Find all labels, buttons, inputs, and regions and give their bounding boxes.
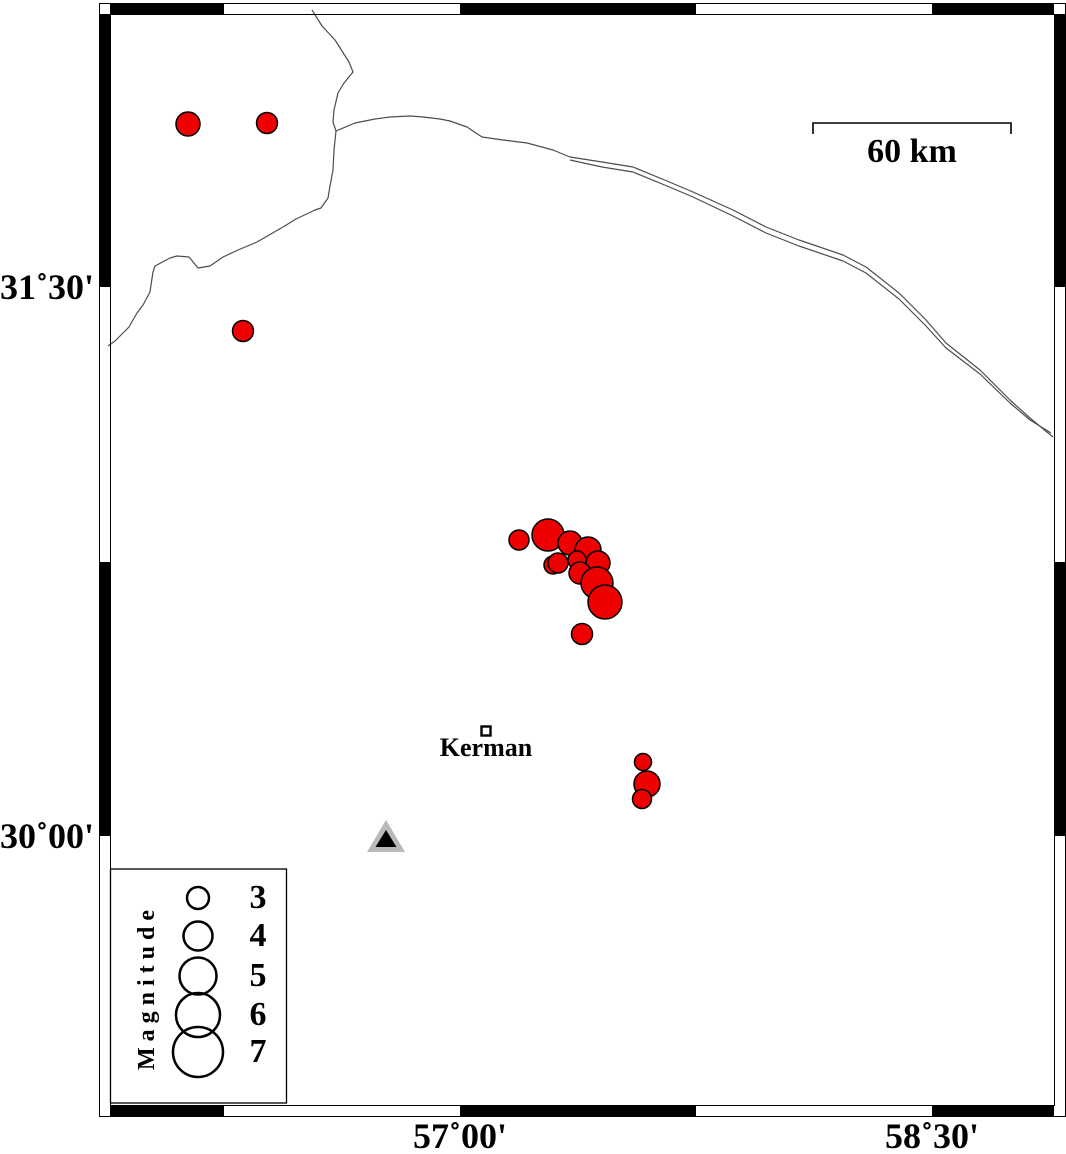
frame-tick-bottom-2 bbox=[932, 1106, 1054, 1117]
map-canvas: 31˚30' 30˚00' 57˚00' 58˚30' 60 km Kerman… bbox=[0, 0, 1066, 1154]
frame-tick-top-0 bbox=[110, 4, 224, 15]
frame-tick-top-2 bbox=[932, 4, 1054, 15]
frame-tick-left-1 bbox=[100, 562, 111, 836]
earthquake-marker-14 bbox=[572, 624, 593, 645]
frame-tick-left-0 bbox=[100, 14, 111, 287]
border-line-0 bbox=[108, 10, 353, 346]
frame-tick-bottom-1 bbox=[460, 1106, 696, 1117]
city-label-kerman: Kerman bbox=[396, 734, 576, 762]
earthquake-marker-17 bbox=[633, 790, 652, 809]
legend-mag-4-label: 4 bbox=[236, 918, 280, 954]
lon-tick-label-57-00: 57˚00' bbox=[370, 1116, 550, 1154]
border-line-2 bbox=[570, 160, 1051, 433]
legend-mag-7-label: 7 bbox=[236, 1034, 280, 1070]
lat-tick-label-30-00: 30˚00' bbox=[0, 812, 90, 860]
earthquake-marker-0 bbox=[176, 112, 200, 136]
legend-mag-3-label: 3 bbox=[236, 880, 280, 916]
frame-tick-top-1 bbox=[460, 4, 696, 15]
frame-tick-right-1 bbox=[1055, 562, 1066, 836]
earthquake-marker-1 bbox=[257, 113, 278, 134]
earthquake-marker-3 bbox=[509, 530, 529, 550]
legend-title-magnitude: Magnitude bbox=[132, 887, 162, 1087]
legend-mag-6-label: 6 bbox=[236, 997, 280, 1033]
earthquake-marker-2 bbox=[233, 321, 254, 342]
earthquake-marker-15 bbox=[635, 754, 652, 771]
lat-tick-label-31-30: 31˚30' bbox=[0, 263, 90, 311]
legend-mag-5-label: 5 bbox=[236, 958, 280, 994]
frame-tick-bottom-0 bbox=[110, 1106, 224, 1117]
lon-tick-label-58-30: 58˚30' bbox=[842, 1116, 1022, 1154]
earthquake-marker-8 bbox=[548, 553, 568, 573]
scale-bar-label: 60 km bbox=[822, 132, 1002, 172]
earthquake-marker-13 bbox=[588, 585, 622, 619]
frame-tick-right-0 bbox=[1055, 14, 1066, 287]
